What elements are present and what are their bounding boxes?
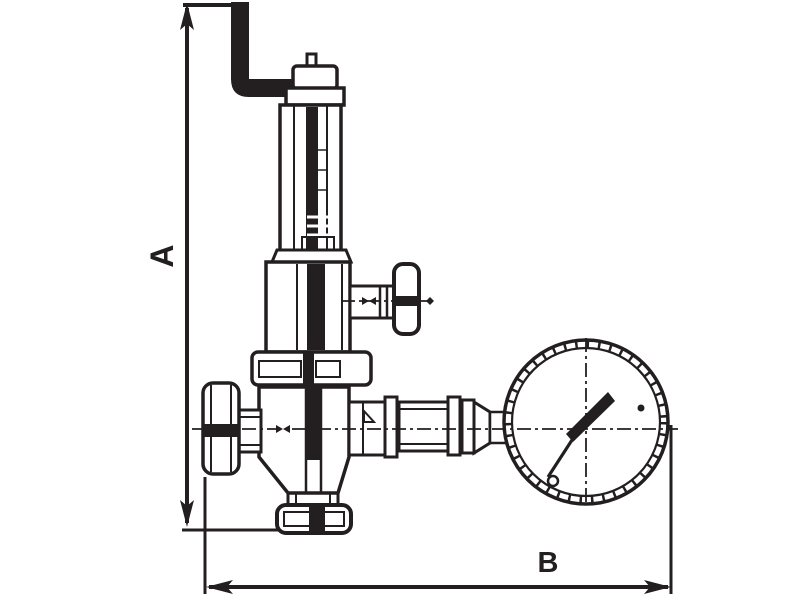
valve-technical-drawing: A B <box>0 0 800 598</box>
dimension-a-label: A <box>144 244 180 267</box>
outlet-fittings <box>349 397 507 457</box>
bonnet <box>266 250 351 352</box>
top-flange <box>252 352 371 385</box>
tee-handle <box>341 264 434 334</box>
stem-cap <box>286 54 344 105</box>
dimension-b-label: B <box>538 547 559 579</box>
valve-body <box>259 387 349 493</box>
bottom-flange <box>277 493 351 533</box>
spring-housing <box>280 105 341 253</box>
drawing-canvas: A B <box>0 0 800 598</box>
